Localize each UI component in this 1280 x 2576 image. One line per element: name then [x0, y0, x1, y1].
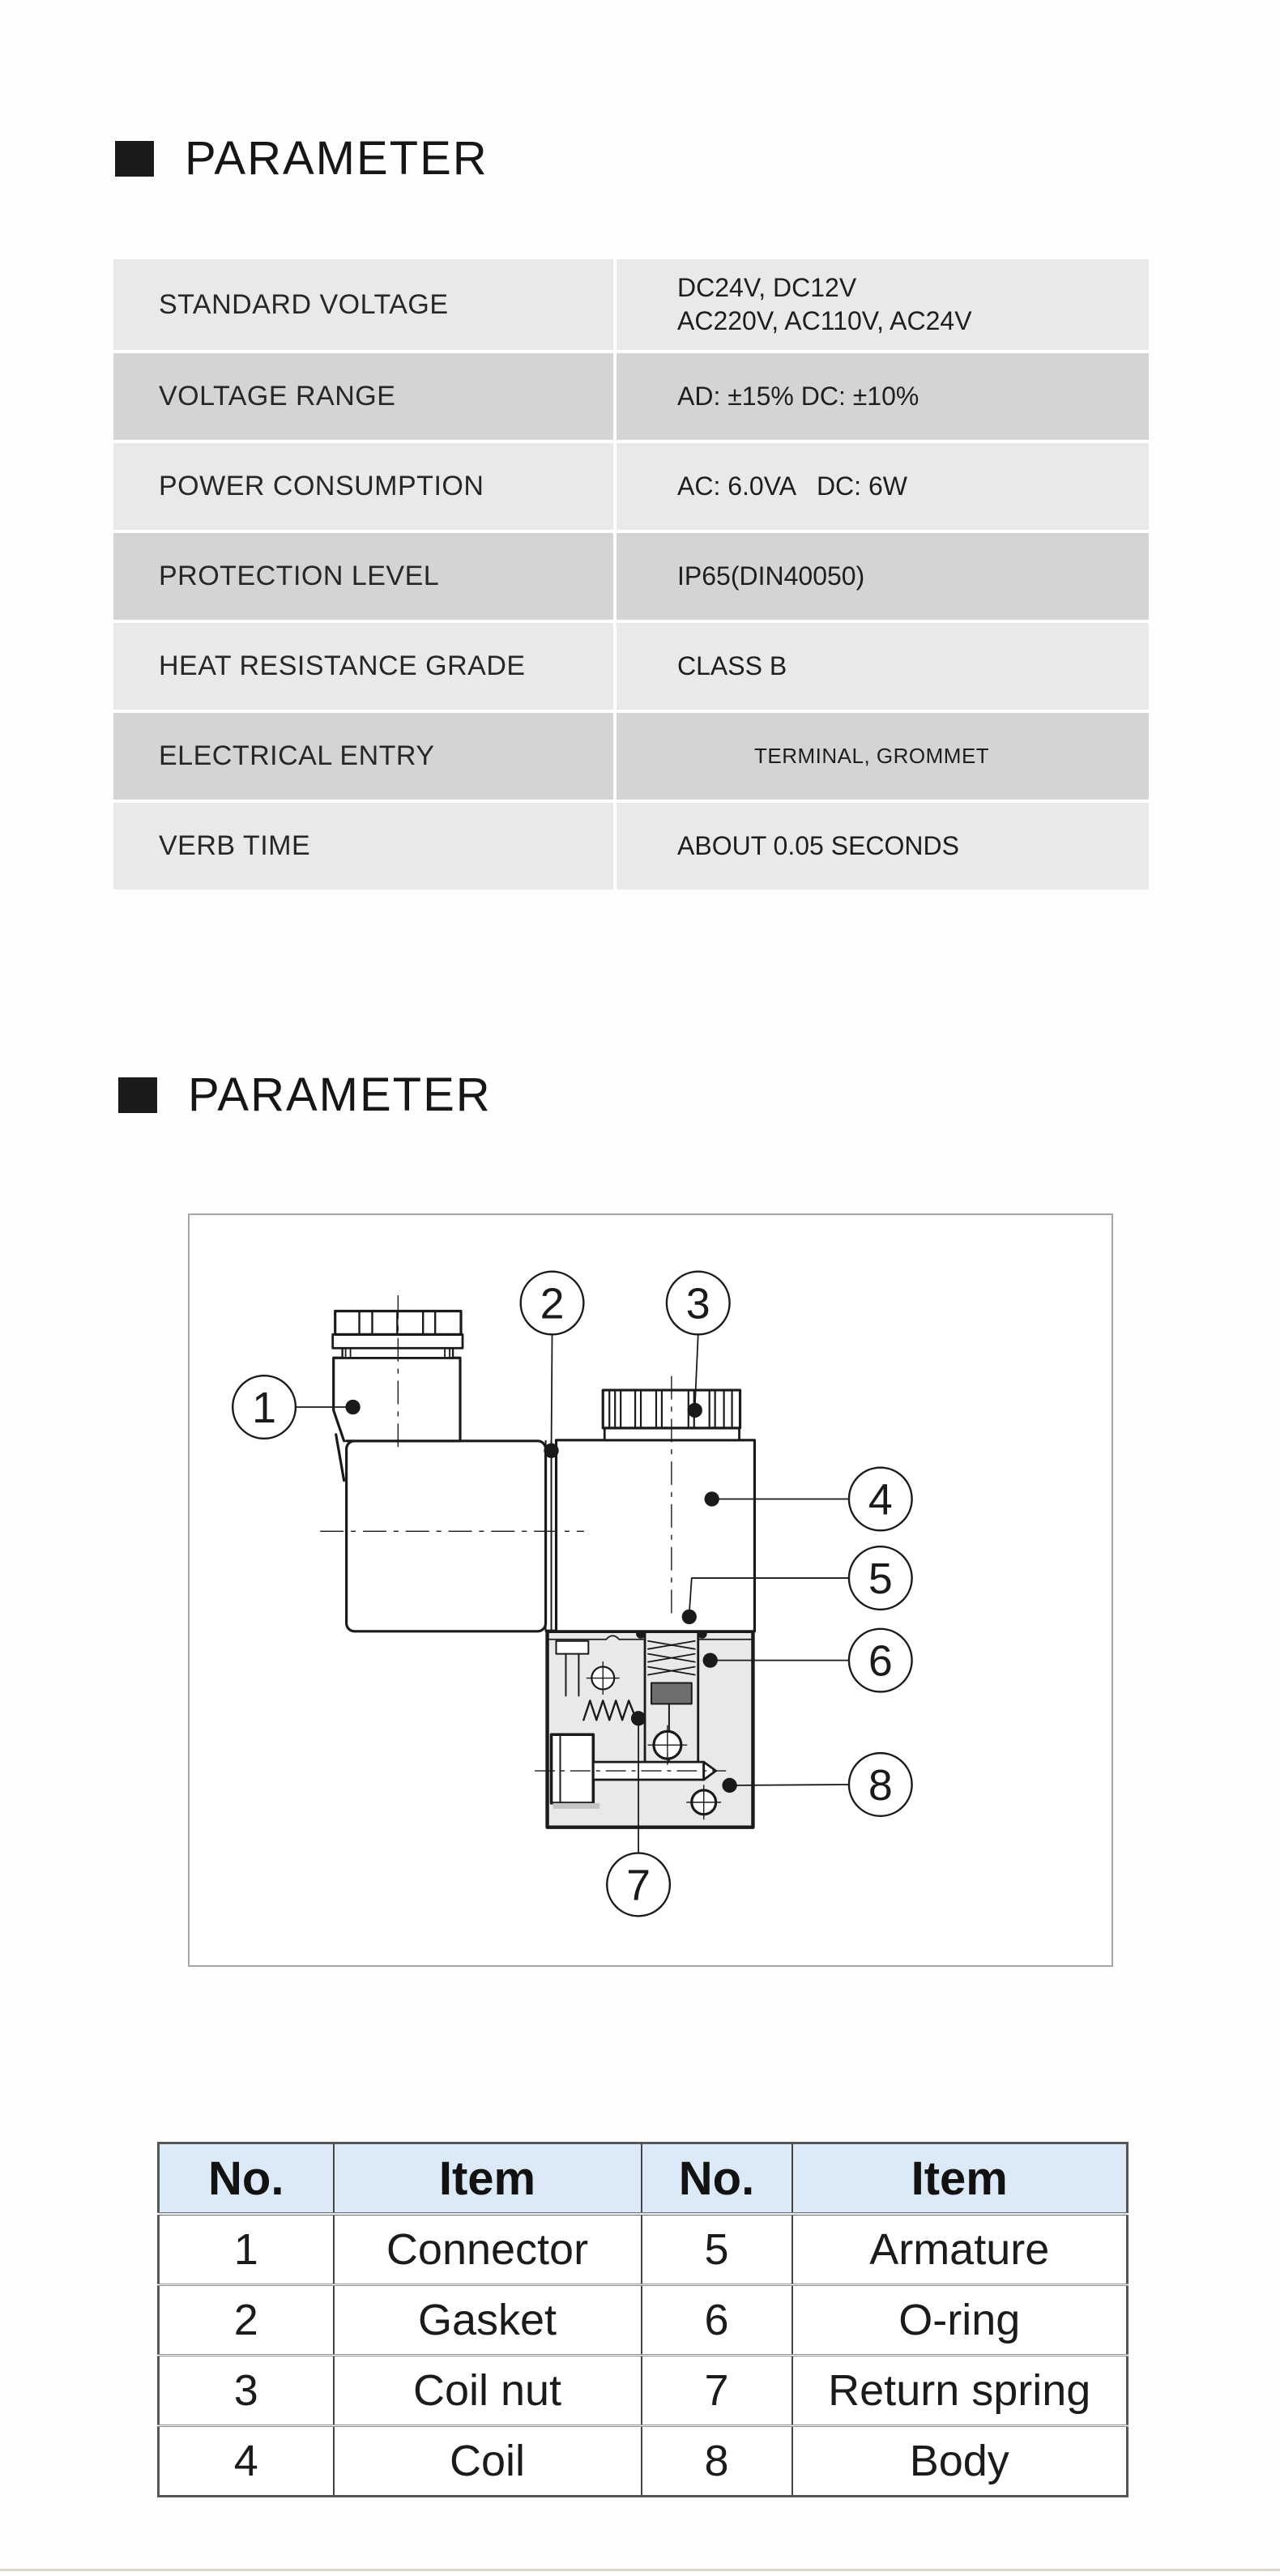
spec-value-line: DC24V, DC12V	[677, 271, 1149, 305]
svg-text:8: 8	[868, 1761, 893, 1810]
spec-label: STANDARD VOLTAGE	[113, 259, 613, 350]
spec-value-line: AC: 6.0VA DC: 6W	[677, 470, 1149, 503]
callout-1: 1	[233, 1375, 296, 1439]
part-no: 8	[642, 2426, 792, 2497]
port-fitting	[552, 1734, 594, 1803]
part-item: Coil	[334, 2426, 642, 2497]
pilot-seat	[557, 1641, 589, 1654]
spec-value: CLASS B	[617, 623, 1149, 710]
svg-text:7: 7	[626, 1861, 651, 1909]
part-no: 4	[159, 2426, 334, 2497]
spec-value: TERMINAL, GROMMET	[617, 713, 1149, 800]
part-item: Armature	[792, 2214, 1128, 2285]
spec-value-line: AC220V, AC110V, AC24V	[677, 305, 1149, 338]
spec-value: IP65(DIN40050)	[617, 533, 1149, 620]
spec-value-line: TERMINAL, GROMMET	[754, 740, 1149, 773]
column-header-no: No.	[159, 2143, 334, 2215]
part-no: 7	[642, 2356, 792, 2426]
callout-8: 8	[849, 1753, 912, 1816]
part-item: O-ring	[792, 2285, 1128, 2356]
part-item: Connector	[334, 2214, 642, 2285]
spec-table: STANDARD VOLTAGE DC24V, DC12V AC220V, AC…	[113, 259, 1149, 893]
svg-text:5: 5	[868, 1555, 893, 1603]
parts-table-header-row: No. Item No. Item	[159, 2143, 1128, 2215]
spec-label: VOLTAGE RANGE	[113, 353, 613, 440]
heading-square-icon	[115, 141, 154, 177]
datasheet-page: { "headings": [ { "text": "PARAMETER" },…	[0, 0, 1280, 2576]
part-item: Gasket	[334, 2285, 642, 2356]
svg-text:4: 4	[868, 1475, 893, 1524]
part-no: 2	[159, 2285, 334, 2356]
svg-text:1: 1	[252, 1384, 276, 1432]
section-heading-parameter-2: PARAMETER	[118, 1068, 492, 1122]
svg-text:6: 6	[868, 1637, 893, 1686]
spec-value: ABOUT 0.05 SECONDS	[617, 803, 1149, 889]
column-header-no: No.	[642, 2143, 792, 2215]
callout-2: 2	[521, 1272, 584, 1335]
heading-square-icon	[118, 1077, 157, 1113]
spec-value: AC: 6.0VA DC: 6W	[617, 443, 1149, 530]
connector-housing	[347, 1441, 546, 1631]
valve-cross-section-diagram: 1 2 3 4 5 6 7	[188, 1213, 1113, 1967]
spec-value-line: ABOUT 0.05 SECONDS	[677, 830, 1149, 863]
callout-4: 4	[849, 1468, 912, 1531]
spec-value-line: CLASS B	[677, 650, 1149, 683]
spec-label: POWER CONSUMPTION	[113, 443, 613, 530]
armature	[651, 1683, 692, 1704]
table-row: VOLTAGE RANGE AD: ±15% DC: ±10%	[113, 353, 1149, 440]
spec-label: PROTECTION LEVEL	[113, 533, 613, 620]
table-row: HEAT RESISTANCE GRADE CLASS B	[113, 623, 1149, 710]
spec-value-line: IP65(DIN40050)	[677, 560, 1149, 593]
page-bottom-rule	[0, 2569, 1280, 2571]
section-title: PARAMETER	[185, 131, 489, 186]
part-no: 5	[642, 2214, 792, 2285]
parts-table: No. Item No. Item 1 Connector 5 Armature…	[157, 2142, 1129, 2497]
table-row: ELECTRICAL ENTRY TERMINAL, GROMMET	[113, 713, 1149, 800]
table-row: VERB TIME ABOUT 0.05 SECONDS	[113, 803, 1149, 889]
callout-7: 7	[607, 1853, 670, 1917]
part-item: Body	[792, 2426, 1128, 2497]
callout-3: 3	[667, 1272, 730, 1335]
coil	[557, 1440, 755, 1631]
table-row: STANDARD VOLTAGE DC24V, DC12V AC220V, AC…	[113, 259, 1149, 350]
solenoid-valve-drawing: 1 2 3 4 5 6 7	[190, 1215, 1111, 1965]
section-title: PARAMETER	[188, 1068, 492, 1122]
table-row: 3 Coil nut 7 Return spring	[159, 2356, 1128, 2426]
part-item: Coil nut	[334, 2356, 642, 2426]
table-row: 4 Coil 8 Body	[159, 2426, 1128, 2497]
spec-value: DC24V, DC12V AC220V, AC110V, AC24V	[617, 259, 1149, 350]
spec-label: ELECTRICAL ENTRY	[113, 713, 613, 800]
callout-6: 6	[849, 1629, 912, 1692]
table-row: 1 Connector 5 Armature	[159, 2214, 1128, 2285]
part-no: 6	[642, 2285, 792, 2356]
svg-text:2: 2	[540, 1279, 565, 1328]
part-no: 3	[159, 2356, 334, 2426]
table-row: POWER CONSUMPTION AC: 6.0VA DC: 6W	[113, 443, 1149, 530]
spec-label: VERB TIME	[113, 803, 613, 889]
part-item: Return spring	[792, 2356, 1128, 2426]
part-no: 1	[159, 2214, 334, 2285]
spec-label: HEAT RESISTANCE GRADE	[113, 623, 613, 710]
spec-value: AD: ±15% DC: ±10%	[617, 353, 1149, 440]
column-header-item: Item	[334, 2143, 642, 2215]
column-header-item: Item	[792, 2143, 1128, 2215]
table-row: PROTECTION LEVEL IP65(DIN40050)	[113, 533, 1149, 620]
svg-text:3: 3	[686, 1279, 710, 1328]
callout-5: 5	[849, 1546, 912, 1610]
section-heading-parameter-1: PARAMETER	[115, 131, 489, 186]
table-row: 2 Gasket 6 O-ring	[159, 2285, 1128, 2356]
spec-value-line: AD: ±15% DC: ±10%	[677, 380, 1149, 413]
